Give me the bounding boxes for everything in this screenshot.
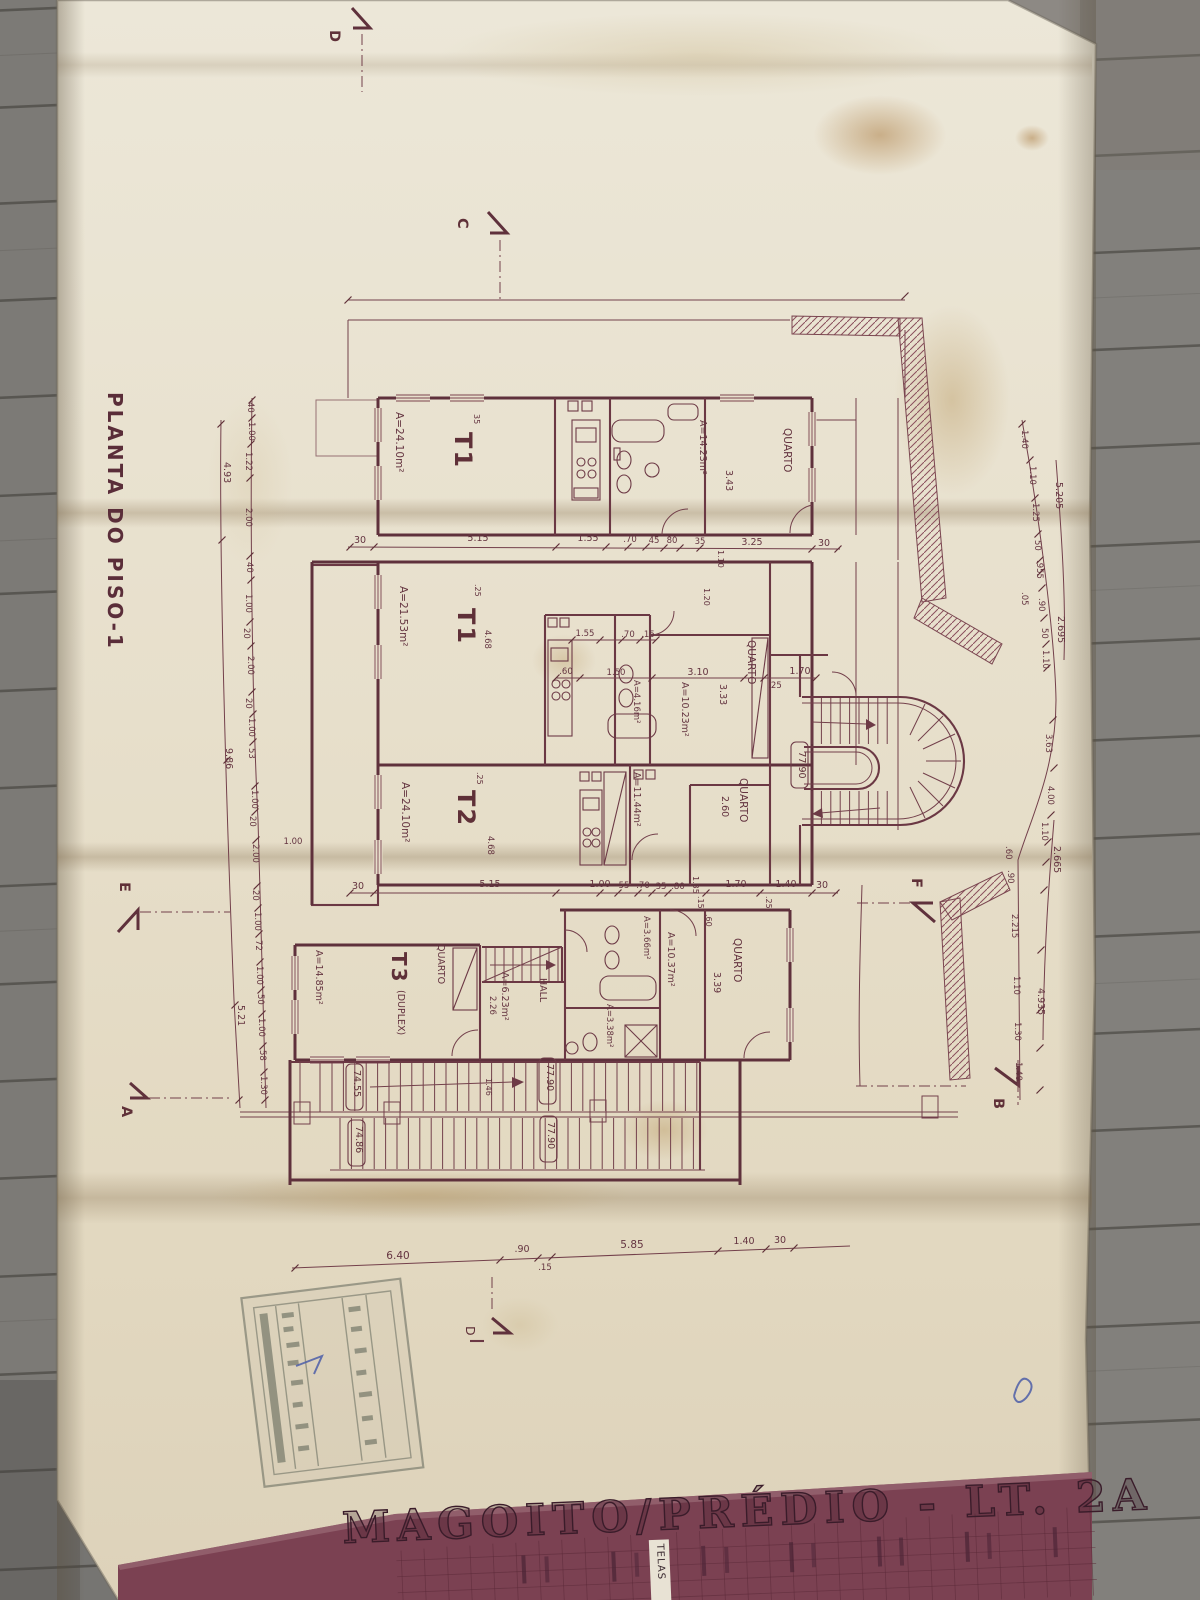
section-letter: A [118, 1106, 134, 1118]
dim-label: 35 [656, 882, 667, 892]
materials-chip-label: TELAS [654, 1542, 667, 1580]
dim-label: 72 [253, 940, 263, 951]
apartment-label: T1 [449, 432, 477, 469]
dim-label: .60 [1003, 846, 1013, 860]
room-area-label: A=10.23m² [679, 682, 690, 737]
dim-label: 1.10 [1011, 976, 1021, 995]
dim-total-label: 4.935 [1035, 988, 1046, 1015]
dim-label: 50 [1039, 628, 1049, 639]
dim-label: 40 [244, 562, 254, 573]
section-letter: D [463, 1326, 478, 1336]
room-area-label: A=14.23m² [697, 420, 708, 475]
dim-total-label: 2.665 [1051, 846, 1062, 873]
dim-label: 53 [246, 748, 256, 759]
dim-label: 4.00 [1045, 786, 1055, 805]
dim-label: 5.85 [620, 1239, 643, 1251]
level-label: 74.86 [353, 1126, 364, 1153]
approval-stamp [241, 1279, 423, 1487]
dim-label: 58 [257, 1050, 267, 1061]
dim-total-label: 5.21 [235, 1005, 246, 1026]
dim-label: .15 [641, 630, 655, 640]
dim-label: 30 [816, 880, 828, 891]
dim-label: 1.20 [702, 588, 711, 606]
dim-label: 20 [250, 890, 260, 901]
dim-total-label: 2.695 [1055, 616, 1066, 643]
section-letter: D [326, 30, 342, 42]
dim-label: .90 [1036, 598, 1046, 612]
room-area-label: A=24.10m² [393, 412, 405, 472]
dim-label: 1.00 [246, 422, 256, 441]
dim-label: 1.70 [789, 666, 810, 677]
dim-label: 6.40 [386, 1250, 409, 1262]
dim-label: 20 [243, 698, 253, 709]
dim-label: 1.55 [576, 629, 595, 639]
dim-label: 40 [245, 402, 255, 413]
dim-label: 5.15 [479, 879, 500, 890]
drawing-title: PLANTA DO PISO-1 [103, 392, 127, 651]
dim-label: .60 [704, 914, 713, 927]
room-area-label: A=24.10m² [399, 782, 411, 842]
room-area-label: A=10.37m² [665, 932, 676, 987]
dim-label: 1.00 [254, 966, 264, 985]
apartment-sublabel: (DUPLEX) [395, 990, 406, 1035]
dim-total-label: 4.93 [221, 462, 232, 483]
dim-label: 1.22 [243, 452, 253, 471]
dim-label: 20 [247, 816, 257, 827]
dim-label: 35 [472, 414, 481, 424]
dim-label: 30 [352, 881, 364, 892]
dim-label: 55 [619, 881, 630, 891]
dim-label: .70 [621, 630, 635, 640]
room-name-label: HALL [537, 978, 548, 1003]
level-label: 74.55 [351, 1070, 362, 1097]
dim-label: 1.50 [607, 668, 626, 678]
dim-label: 1.40 [733, 1236, 754, 1247]
dim-label: .90 [1005, 870, 1015, 884]
dim-label: .60 [559, 667, 573, 677]
dim-label: .90 [514, 1244, 529, 1255]
dim-label: 1.00 [589, 879, 610, 890]
dim-label: 1.10 [1040, 650, 1050, 669]
dim-label: 20 [241, 628, 251, 639]
dim-label: 2.00 [250, 844, 260, 863]
section-letter: C [454, 218, 470, 229]
dim-total-label: 9.86 [223, 748, 234, 769]
dim-label: .70 [623, 535, 637, 545]
dim-label: .25 [475, 772, 484, 785]
dim-label: 80 [667, 536, 678, 546]
dim-label: 3.10 [687, 667, 708, 678]
dim-label: 30 [818, 538, 830, 549]
dim-label: 1.35 [691, 876, 700, 894]
dim-label: 30 [354, 535, 366, 546]
dim-label: 1.00 [249, 790, 259, 809]
section-letter: F [908, 878, 924, 888]
room-name-label: QUARTO [731, 938, 743, 982]
dim-label: 3.39 [711, 972, 722, 993]
dim-label: 1.70 [725, 879, 746, 890]
dim-label: 3.63 [1043, 734, 1053, 753]
blueprint-paper-sheet [57, 0, 1096, 1600]
dim-total-label: 5.205 [1053, 482, 1064, 509]
dim-label: 1.25 [1030, 503, 1040, 522]
dim-label: 2.60 [719, 796, 730, 817]
dim-label: 50 [255, 994, 265, 1005]
dim-label: 1.46 [484, 1078, 493, 1096]
apartment-label: T2 [452, 790, 480, 827]
section-letter: E [116, 882, 132, 892]
dim-label: 1.30 [1012, 1022, 1022, 1041]
room-area-label: A=21.53m² [397, 586, 409, 646]
dim-label: .25 [768, 681, 782, 691]
dim-label: .955 [1034, 560, 1044, 579]
apartment-label: T1 [452, 608, 480, 645]
dim-label: 35 [695, 537, 706, 547]
dim-label: .25 [764, 896, 773, 909]
level-label: 77.90 [545, 1122, 556, 1149]
paper-outline [57, 0, 1096, 1600]
room-area-label: A=11.44m² [631, 772, 642, 827]
dim-label: 1.40 [1019, 430, 1029, 449]
room-name-label: QUARTO [781, 428, 793, 472]
level-label: 77.90 [544, 1064, 555, 1091]
dim-label: 1.30 [258, 1076, 268, 1095]
room-area-label: A=14.85m² [313, 950, 324, 1005]
dim-label: .05 [1019, 592, 1029, 606]
dim-label: 2.00 [243, 508, 253, 527]
dim-label: 4.68 [485, 836, 495, 855]
dim-label: 50 [1032, 540, 1042, 551]
dim-label: 3.25 [741, 537, 762, 548]
room-name-label: QUARTO [737, 778, 749, 822]
dim-label: 2.215 [1009, 914, 1019, 938]
dim-label: .15 [538, 1263, 552, 1273]
room-area-label: A=3.38m² [604, 1004, 614, 1048]
dim-label: 2.00 [245, 656, 255, 675]
dim-label: 1.10 [1027, 466, 1037, 485]
dim-label: 4.68 [482, 630, 492, 649]
dim-label: 1.00 [246, 718, 256, 737]
photo-of-floor-plan: PLANTA DO PISO-1 [0, 0, 1200, 1600]
dim-label: 2.26 [487, 996, 497, 1015]
level-label: 77.90 [796, 751, 807, 778]
dim-label: .80 [671, 882, 685, 892]
dim-label: 1.00 [243, 594, 253, 613]
section-letter: B [990, 1098, 1006, 1109]
dim-label: 1.55 [577, 533, 598, 544]
dim-label: 1.00 [256, 1018, 266, 1037]
apartment-label: T3 [387, 952, 411, 984]
dim-label: 3.43 [723, 470, 734, 491]
dim-label: 1.00 [252, 912, 262, 931]
dim-label: 45 [649, 536, 660, 546]
room-area-label: A=4.16m² [631, 680, 641, 724]
dim-label: 3.33 [717, 684, 728, 705]
dim-label: .25 [473, 584, 482, 597]
dim-label: 1.10 [716, 550, 725, 568]
dim-label: 1.40 [775, 879, 796, 890]
room-area-label: A=6.23m² [499, 972, 510, 1021]
dim-label: 5.15 [467, 533, 488, 544]
dim-label: 1.10 [1039, 822, 1049, 841]
room-name-label: QUARTO [435, 944, 446, 984]
dim-label: .15 [696, 896, 705, 909]
dim-label: .70 [636, 881, 650, 891]
dim-label: 1.00 [284, 837, 303, 847]
dim-label: 30 [774, 1235, 786, 1246]
room-area-label: A=3.66m² [641, 916, 651, 960]
